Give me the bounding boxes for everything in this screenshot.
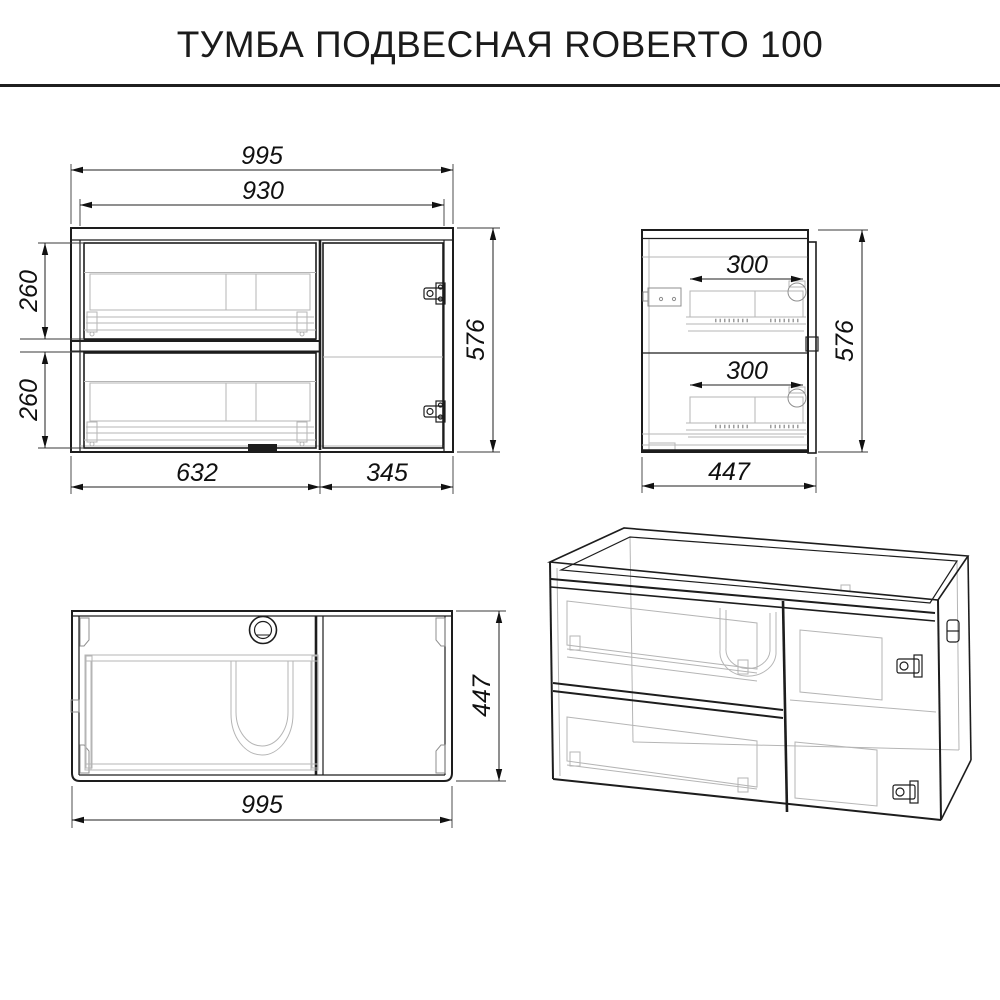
- dim-front-door-width: 345: [366, 459, 408, 487]
- dim-front-inner-width: 930: [242, 177, 284, 205]
- top-view: 995 447: [71, 611, 506, 828]
- front-drawer-bottom: [84, 353, 316, 452]
- side-view: 300 300: [642, 230, 868, 493]
- side-drawer-bottom: 300: [686, 357, 806, 437]
- front-dimensions: 995 930 260 260 576: [15, 142, 500, 494]
- top-dimensions: 995 447: [72, 611, 506, 828]
- dim-front-height: 576: [462, 319, 490, 361]
- dim-front-drawers-width: 632: [176, 459, 218, 487]
- top-drawer-outline: [85, 655, 318, 770]
- side-drawer-top: 300: [686, 251, 806, 331]
- door-hinge-icon: [424, 401, 445, 422]
- dim-side-bottom-drawer-depth: 300: [726, 357, 768, 385]
- dim-top-width: 995: [241, 791, 283, 819]
- dim-side-height: 576: [831, 320, 859, 362]
- front-view: 995 930 260 260 576: [15, 142, 500, 494]
- front-drawer-top: [84, 243, 316, 340]
- dim-top-depth: 447: [468, 674, 496, 717]
- page: ТУМБА ПОДВЕСНАЯ ROBERTO 100: [0, 0, 1000, 1000]
- iso-door-hinge-icon: [893, 781, 918, 803]
- iso-interior-wireframe: [557, 537, 959, 806]
- dim-front-top-drawer-height: 260: [15, 270, 43, 313]
- front-door: [323, 243, 445, 448]
- iso-door-hinge-icon: [897, 655, 922, 677]
- drawer-handle-notch: [248, 444, 277, 452]
- top-carcass: [71, 611, 452, 781]
- side-door-edge: [808, 242, 816, 453]
- dim-side-top-drawer-depth: 300: [726, 251, 768, 279]
- dim-side-depth: 447: [708, 458, 751, 486]
- siphon-hole-icon: [250, 617, 277, 644]
- door-hinge-icon: [424, 283, 445, 304]
- dim-front-total-width: 995: [241, 142, 283, 170]
- dim-front-bottom-drawer-height: 260: [15, 379, 43, 422]
- drawing-canvas: 995 930 260 260 576: [0, 0, 1000, 1000]
- iso-view: [550, 528, 971, 820]
